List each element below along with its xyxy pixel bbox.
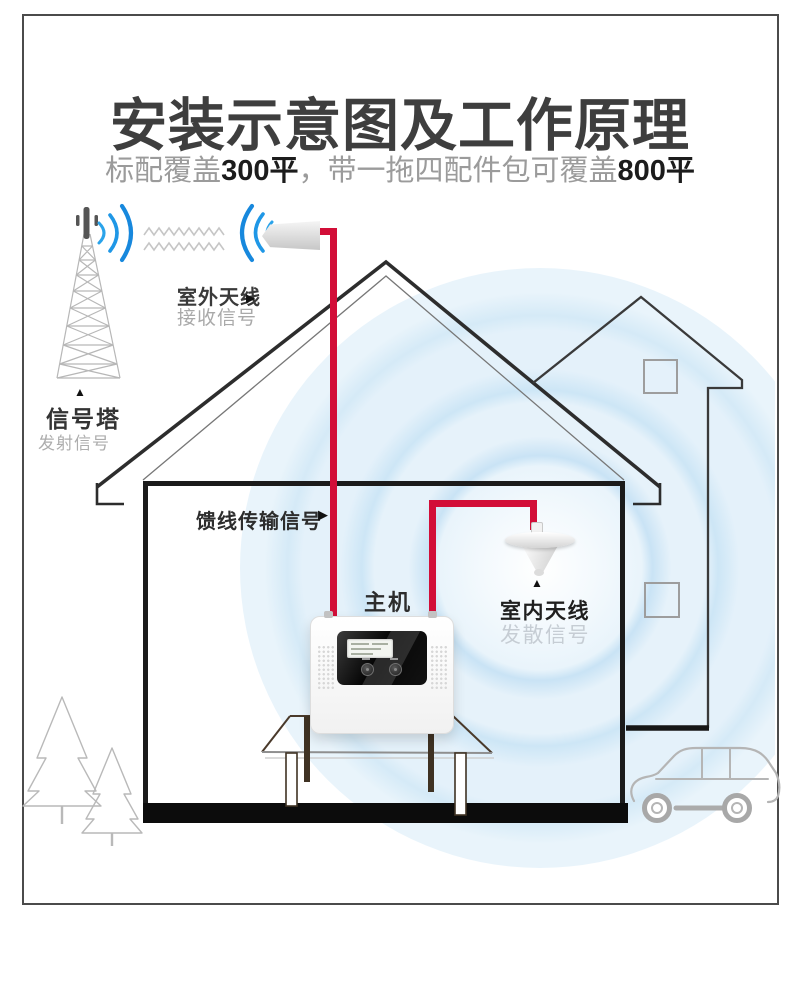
- subtitle-em1: 300平: [221, 155, 298, 187]
- poster-canvas: 安装示意图及工作原理 标配覆盖300平，带一拖四配件包可覆盖800平: [0, 0, 800, 1000]
- arrow-up-icon: ▲: [74, 386, 86, 398]
- arrow-up-icon: ▲: [531, 577, 543, 589]
- house-left-wall: [143, 481, 148, 805]
- connector-knob-left: [361, 663, 374, 676]
- vent-grille-left: [317, 645, 334, 689]
- feeder-label: 馈线传输信号: [196, 505, 322, 534]
- arrow-right-icon: ▶: [318, 509, 328, 521]
- lcd-row: [351, 643, 369, 645]
- indoor-antenna-icon: [505, 532, 575, 548]
- connector-knob-right: [389, 663, 402, 676]
- lcd-row: [351, 648, 381, 650]
- knob-label-right: [390, 658, 398, 660]
- host-label: 主机: [364, 585, 412, 617]
- cable-port-right: [428, 611, 437, 618]
- tower-caption: 发射信号: [38, 429, 110, 454]
- vent-grille-right: [430, 645, 447, 689]
- knob-label-left: [362, 658, 370, 660]
- repeater-host-device: [310, 616, 454, 734]
- cable-outdoor-vertical: [330, 228, 337, 620]
- subtitle-part1: 标配覆盖: [105, 155, 221, 187]
- signal-ripple-icon: [240, 268, 775, 868]
- indoor-antenna-caption: 发散信号: [500, 619, 590, 649]
- device-lcd-screen: [347, 639, 393, 658]
- house-floor: [143, 803, 628, 823]
- lcd-row: [372, 643, 388, 645]
- cable-port-left: [324, 611, 333, 618]
- subtitle-em2: 800平: [618, 155, 695, 187]
- house-right-wall: [620, 481, 625, 805]
- lcd-row: [351, 653, 373, 655]
- page-subtitle: 标配覆盖300平，带一拖四配件包可覆盖800平: [0, 147, 800, 189]
- cable-indoor-vertical: [429, 500, 436, 620]
- house-ceiling-line: [143, 481, 625, 486]
- cable-indoor-horizontal: [429, 500, 537, 507]
- device-front-panel: [337, 631, 427, 685]
- subtitle-part2: ，带一拖四配件包可覆盖: [299, 155, 618, 187]
- outdoor-antenna-caption: 接收信号: [177, 303, 257, 330]
- outdoor-antenna-icon: [262, 221, 320, 250]
- indoor-antenna-tip: [534, 569, 544, 576]
- arrow-right-icon: ▶: [246, 292, 255, 304]
